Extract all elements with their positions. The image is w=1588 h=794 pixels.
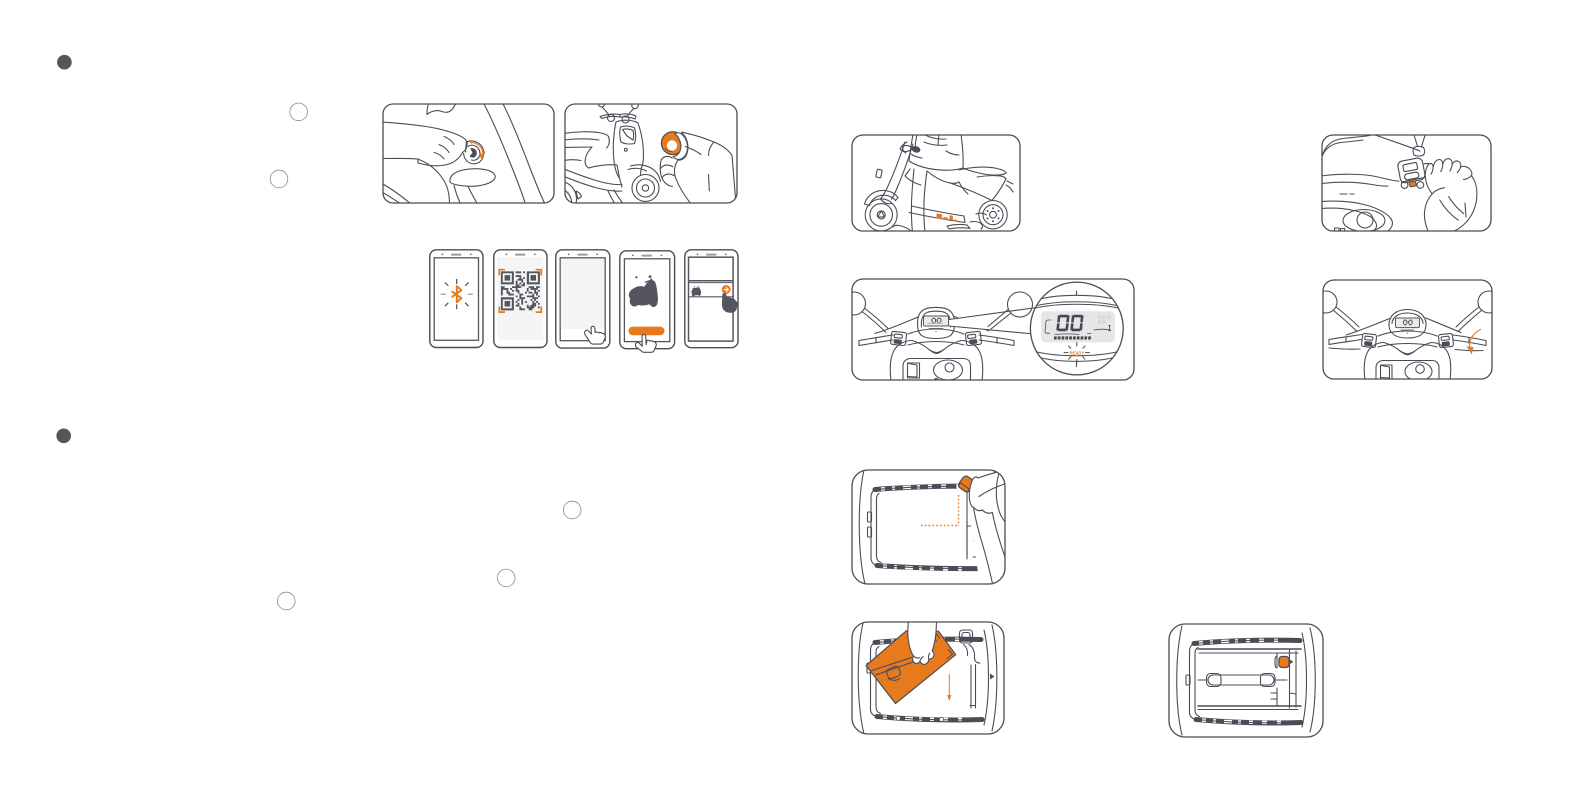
svg-text:READY: READY xyxy=(1070,350,1086,355)
